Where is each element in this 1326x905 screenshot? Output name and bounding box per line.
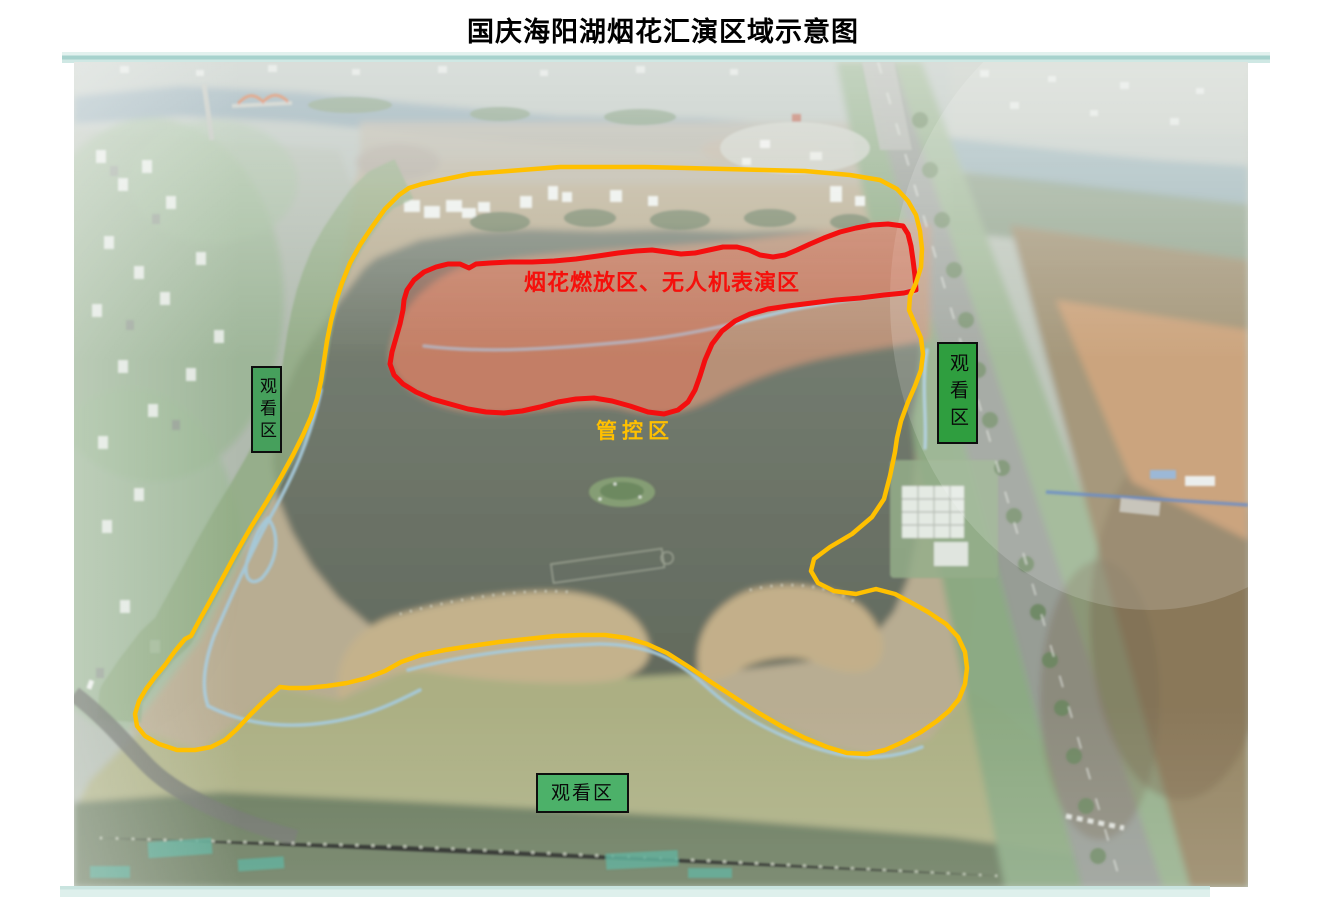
aerial-photo-art (74, 62, 1248, 887)
viewing-area-box-left: 观看区 (251, 366, 282, 453)
viewing-area-label-bottom: 观看区 (551, 784, 614, 803)
haze-overlay (74, 62, 1248, 887)
control-zone-label: 管控区 (596, 420, 674, 443)
viewing-area-label-right: 观看区 (948, 353, 967, 434)
poster: 国庆海阳湖烟花汇演区域示意图 (0, 0, 1326, 905)
aerial-photo (74, 62, 1248, 887)
viewing-area-box-right: 观看区 (937, 342, 978, 444)
page-title: 国庆海阳湖烟花汇演区域示意图 (0, 10, 1326, 49)
viewing-area-label-left: 观看区 (258, 377, 275, 443)
fireworks-zone-label: 烟花燃放区、无人机表演区 (524, 271, 794, 295)
bottom-accent-bar (60, 886, 1210, 897)
viewing-area-box-bottom: 观看区 (536, 773, 629, 813)
